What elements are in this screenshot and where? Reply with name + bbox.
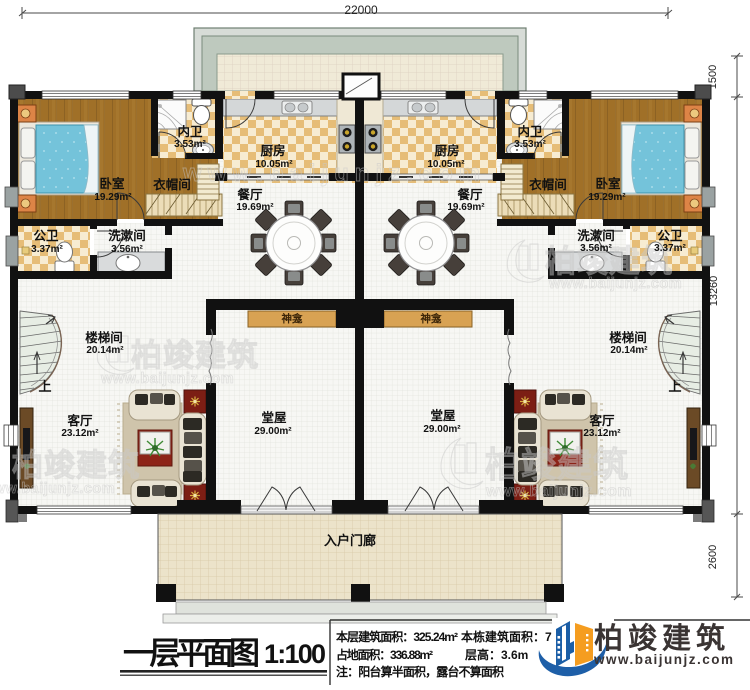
svg-text:客厅: 客厅	[588, 413, 615, 428]
svg-text:本栋建筑面积：733: 本栋建筑面积：733	[461, 629, 565, 644]
svg-text:3.53m²: 3.53m²	[514, 139, 546, 150]
svg-text:10.05m²: 10.05m²	[255, 159, 293, 170]
svg-text:柏竣建筑: 柏竣建筑	[485, 445, 629, 485]
svg-text:19.69m²: 19.69m²	[447, 202, 485, 213]
svg-text:1:100: 1:100	[264, 639, 326, 669]
svg-text:www.baijunjz.com: www.baijunjz.com	[485, 483, 632, 500]
svg-text:3.56m²: 3.56m²	[111, 244, 143, 255]
svg-text:卧室: 卧室	[595, 176, 621, 191]
svg-text:堂屋: 堂屋	[261, 410, 287, 425]
svg-text:楼梯间: 楼梯间	[85, 330, 123, 345]
svg-text:2600: 2600	[707, 545, 719, 569]
svg-text:注：阳台算半面积，露台不算面积: 注：阳台算半面积，露台不算面积	[336, 664, 504, 679]
svg-text:衣帽间: 衣帽间	[153, 177, 191, 192]
svg-text:公卫: 公卫	[33, 229, 59, 243]
svg-text:23.12m²: 23.12m²	[61, 428, 99, 439]
svg-text:占地面积：336.88m²: 占地面积：336.88m²	[336, 647, 433, 662]
svg-text:层高：3.6m: 层高：3.6m	[465, 647, 528, 662]
svg-text:堂屋: 堂屋	[430, 408, 456, 423]
svg-text:客厅: 客厅	[66, 413, 93, 428]
svg-text:10.05m²: 10.05m²	[427, 159, 465, 170]
svg-text:20.14m²: 20.14m²	[86, 345, 124, 356]
svg-text:神龛: 神龛	[282, 312, 303, 325]
svg-text:19.69m²: 19.69m²	[236, 202, 274, 213]
svg-text:洗漱间: 洗漱间	[108, 228, 146, 243]
svg-text:29.00m²: 29.00m²	[423, 424, 461, 435]
svg-text:楼梯间: 楼梯间	[609, 330, 647, 345]
svg-text:22000: 22000	[344, 3, 378, 17]
svg-text:20.14m²: 20.14m²	[610, 345, 648, 356]
svg-text:www.baijunjz.com: www.baijunjz.com	[0, 481, 115, 497]
svg-text:洗漱间: 洗漱间	[577, 228, 615, 243]
svg-text:本层建筑面积：325.24m²: 本层建筑面积：325.24m²	[336, 629, 458, 644]
svg-text:19.29m²: 19.29m²	[588, 192, 626, 203]
svg-text:29.00m²: 29.00m²	[254, 426, 292, 437]
svg-text:入户门廊: 入户门廊	[324, 533, 376, 548]
svg-text:23.12m²: 23.12m²	[583, 428, 621, 439]
svg-text:3.37m²: 3.37m²	[654, 243, 686, 254]
svg-text:www.baijunjz.com: www.baijunjz.com	[593, 652, 735, 667]
svg-text:柏竣建筑: 柏竣建筑	[131, 338, 259, 373]
svg-text:一层平面图: 一层平面图	[123, 636, 260, 671]
svg-text:柏竣建筑: 柏竣建筑	[594, 621, 730, 655]
svg-text:厨房: 厨房	[260, 143, 285, 158]
svg-text:3.53m²: 3.53m²	[174, 139, 206, 150]
svg-text:公卫: 公卫	[657, 229, 683, 243]
svg-text:www.baijunjz.com: www.baijunjz.com	[100, 371, 234, 387]
svg-text:柏竣建筑: 柏竣建筑	[12, 448, 140, 483]
svg-text:厨房: 厨房	[434, 143, 459, 158]
svg-text:上: 上	[38, 379, 51, 394]
svg-text:内卫: 内卫	[517, 124, 543, 139]
svg-text:卧室: 卧室	[99, 176, 125, 191]
svg-text:餐厅: 餐厅	[456, 187, 483, 202]
svg-text:3.37m²: 3.37m²	[31, 244, 63, 255]
svg-text:衣帽间: 衣帽间	[529, 177, 567, 192]
svg-text:3.56m²: 3.56m²	[580, 243, 612, 254]
svg-text:神龛: 神龛	[421, 312, 442, 325]
svg-text:餐厅: 餐厅	[236, 187, 263, 202]
svg-text:www.baijunjz.com: www.baijunjz.com	[548, 276, 682, 292]
svg-text:内卫: 内卫	[177, 124, 203, 139]
svg-text:上: 上	[668, 379, 681, 394]
svg-text:19.29m²: 19.29m²	[94, 192, 132, 203]
